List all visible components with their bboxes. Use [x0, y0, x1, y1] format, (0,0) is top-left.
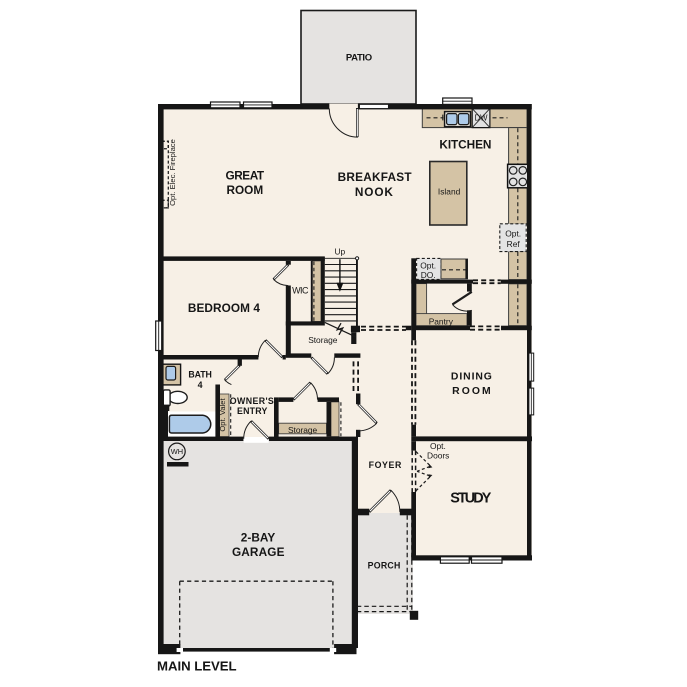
svg-text:Opt.: Opt.	[505, 229, 521, 239]
svg-text:STUDY: STUDY	[450, 490, 491, 506]
svg-text:DW: DW	[475, 114, 489, 123]
svg-text:ROOM: ROOM	[226, 183, 263, 197]
svg-text:2-BAY: 2-BAY	[241, 531, 276, 545]
svg-text:Storage: Storage	[308, 335, 338, 345]
svg-text:PORCH: PORCH	[368, 561, 401, 571]
svg-text:WH: WH	[171, 447, 183, 456]
svg-text:Storage: Storage	[288, 425, 318, 435]
svg-text:ENTRY: ENTRY	[237, 406, 268, 416]
svg-text:BREAKFAST: BREAKFAST	[338, 170, 413, 184]
svg-text:KITCHEN: KITCHEN	[439, 137, 491, 151]
svg-text:DO.: DO.	[421, 270, 436, 280]
svg-text:Opt. Elec. Fireplace: Opt. Elec. Fireplace	[168, 139, 177, 206]
svg-text:WIC: WIC	[292, 286, 309, 296]
svg-text:MAIN LEVEL: MAIN LEVEL	[157, 658, 237, 673]
svg-text:Up: Up	[334, 247, 345, 257]
svg-text:OWNER'S: OWNER'S	[230, 396, 274, 406]
svg-text:Opt. Valet: Opt. Valet	[218, 398, 227, 432]
svg-text:BEDROOM 4: BEDROOM 4	[188, 301, 260, 315]
svg-text:PATIO: PATIO	[346, 52, 372, 63]
svg-text:BATH: BATH	[188, 369, 212, 379]
svg-text:ROOM: ROOM	[452, 386, 491, 397]
svg-text:Doors: Doors	[427, 450, 449, 460]
svg-text:Ref: Ref	[507, 239, 521, 249]
svg-text:FOYER: FOYER	[369, 460, 402, 470]
svg-text:Island: Island	[438, 186, 461, 196]
svg-text:Pantry: Pantry	[429, 316, 454, 326]
svg-text:4: 4	[198, 380, 203, 390]
svg-text:GREAT: GREAT	[225, 169, 264, 183]
svg-text:NOOK: NOOK	[355, 185, 393, 199]
svg-text:DINING: DINING	[451, 371, 492, 382]
svg-text:Opt.: Opt.	[420, 261, 436, 271]
svg-text:GARAGE: GARAGE	[232, 545, 285, 559]
